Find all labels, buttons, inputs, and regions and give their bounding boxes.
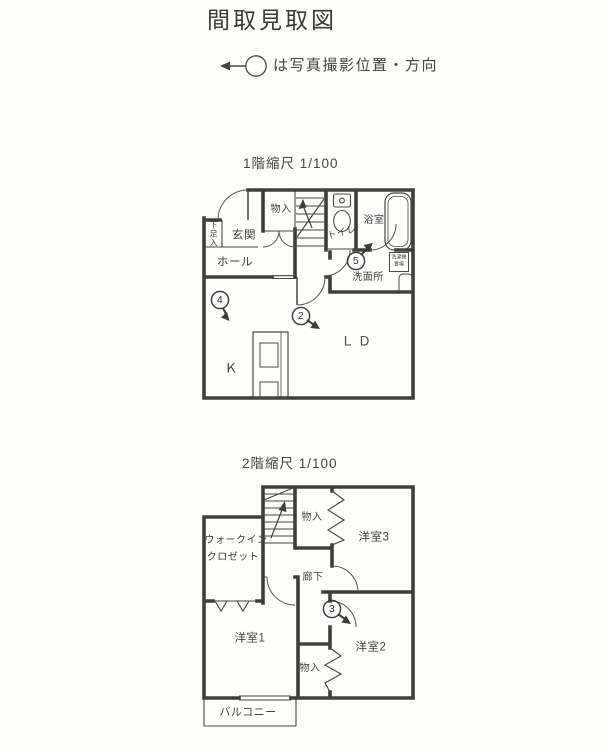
room-label-bath: 浴室	[364, 216, 385, 226]
marker-number-2: 2	[298, 311, 304, 322]
floor2-thin-lines	[204, 488, 296, 726]
room-label-room1: 洋室1	[235, 633, 266, 645]
photo-marker-2	[292, 307, 320, 329]
wash-basin	[399, 274, 413, 293]
room-label-closet-top-f2: 物入	[302, 513, 323, 523]
room-label-closet-f1: 物入	[271, 205, 292, 215]
floor1-scale-label: 1階縮尺 1/100	[243, 157, 339, 171]
room-label-room2: 洋室2	[356, 642, 387, 654]
room-label-hall: ホール	[217, 257, 253, 269]
floorplan-page: 間取見取図 は写真撮影位置・方向 1階縮尺 1/100 2階縮尺 1/100 玄…	[0, 0, 606, 750]
marker-2-arrowhead-icon	[311, 321, 321, 330]
floor1-stairs-arrowhead-icon	[299, 199, 307, 209]
room-label-living-dining: ＬＤ	[341, 335, 375, 348]
photo-marker-5	[347, 243, 373, 270]
page-title: 間取見取図	[207, 9, 337, 32]
marker-number-3: 3	[329, 604, 335, 615]
floorplan-drawing	[0, 0, 606, 750]
room-label-balcony: バルコニー	[219, 708, 276, 719]
room-label-kitchen: Ｋ	[224, 362, 241, 375]
room-label-getabako: 下足入	[209, 221, 217, 248]
room-label-genkan: 玄関	[232, 230, 256, 242]
washer-label-line1: 洗濯機	[391, 256, 406, 261]
legend-label: は写真撮影位置・方向	[273, 58, 438, 73]
photo-marker-3	[323, 600, 351, 624]
room-label-corridor: 廊下	[303, 573, 324, 583]
room-label-wic-line1: ウォークイン	[205, 536, 268, 546]
floor2-scale-label: 2階縮尺 1/100	[242, 457, 338, 471]
legend-circle	[246, 56, 266, 76]
legend-arrowhead-icon	[220, 62, 230, 71]
floor2-stairs-arrowhead-icon	[279, 501, 287, 512]
room-label-room3: 洋室3	[359, 532, 390, 544]
room-label-washroom: 洗面所	[352, 273, 384, 283]
legend-symbol	[220, 56, 266, 76]
washer-label-line2: 置場	[394, 263, 404, 268]
room-label-wic-line2: クロゼット	[207, 553, 260, 563]
kitchen-counter	[253, 332, 288, 398]
marker-number-4: 4	[217, 295, 223, 306]
marker-number-5: 5	[353, 256, 359, 267]
floor2-stairs-arrow	[271, 510, 282, 538]
room-label-closet-bottom-f2: 物入	[300, 664, 321, 674]
